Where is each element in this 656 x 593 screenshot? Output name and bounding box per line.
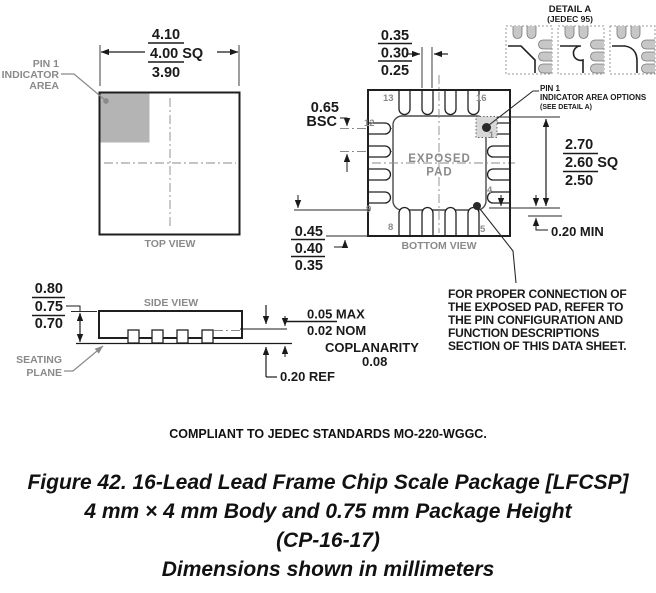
exposed-pad-label1: EXPOSED [408,153,471,165]
pad-corner-dot [473,202,481,210]
pin1-options-line1: PIN 1 [540,84,561,93]
standoff-annotations: 0.05 MAX 0.02 NOM COPLANARITY 0.08 0.20 … [240,305,419,384]
side-lead [128,330,139,343]
height-dim-min: 0.70 [35,316,63,332]
mechanical-drawing: TOP VIEW 4.10 4.00 SQ 3.90 PIN 1 INDICAT… [0,0,656,422]
pin-number-1: 1 [489,130,495,141]
seating-plane-line1: SEATING [16,354,62,366]
top-view-label: TOP VIEW [145,238,196,250]
lead-width-max: 0.35 [381,28,409,44]
seating-plane-line2: PLANE [26,367,62,379]
note-line5: SECTION OF THIS DATA SHEET. [448,339,626,353]
lead-width-nom: 0.30 [381,46,409,62]
figure-caption: Figure 42. 16-Lead Lead Frame Chip Scale… [0,468,656,584]
side-lead [177,330,188,343]
top-view: TOP VIEW 4.10 4.00 SQ 3.90 PIN 1 INDICAT… [2,27,240,250]
note-line2: THE EXPOSED PAD, REFER TO [448,300,623,314]
pin1-options-callout: PIN 1 INDICATOR AREA OPTIONS (SEE DETAIL… [489,84,647,125]
pin-number-12: 12 [364,118,375,129]
caption-line-3: (CP-16-17) [0,526,656,555]
body-dim-max: 4.10 [152,27,180,43]
pad-dim-nom: 2.60 SQ [565,155,618,171]
seating-plane-callout: SEATING PLANE [16,346,103,379]
caption-line-2: 4 mm × 4 mm Body and 0.75 mm Package Hei… [0,497,656,526]
coplanarity-value: 0.08 [362,354,387,369]
pin-number-9: 9 [366,204,371,215]
bottom-view: 1 EXPOSED PAD BOTTOM VIEW 13 16 12 9 8 5… [291,28,647,353]
detail-a-option-1 [506,26,552,74]
pad-to-lead-clearance: 0.20 MIN [551,224,604,239]
caption-line-4: Dimensions shown in millimeters [0,555,656,584]
lead-width-dimension: 0.35 0.30 0.25 [378,28,448,88]
pin-number-8: 8 [388,222,393,233]
detail-a-subtitle: (JEDEC 95) [547,14,593,24]
detail-a: DETAIL A (JEDEC 95) [506,4,655,74]
pin-number-16: 16 [476,93,487,104]
bottom-view-label: BOTTOM VIEW [401,240,476,252]
pin1-options-line2: INDICATOR AREA OPTIONS [540,93,647,102]
height-dim-nom: 0.75 [35,299,63,315]
note-line1: FOR PROPER CONNECTION OF [448,287,627,301]
body-size-dimension: 4.10 4.00 SQ 3.90 [100,27,239,86]
pin-number-13: 13 [383,93,394,104]
lead-width-min: 0.25 [381,63,409,79]
exposed-pad-label2: PAD [426,167,452,179]
standoff-nom: 0.02 NOM [307,323,366,338]
pin-number-5: 5 [480,224,486,235]
pin1-area-line3: AREA [29,80,59,92]
lead-length-dimension: 0.45 0.40 0.35 [291,195,370,274]
lead-pitch-dimension: 0.65 BSC [306,100,347,172]
note-line4: FUNCTION DESCRIPTIONS [448,326,599,340]
package-height-dimension: 0.80 0.75 0.70 [32,281,97,342]
side-lead [152,330,163,343]
pin-number-4: 4 [487,185,493,196]
lead-length-max: 0.45 [295,224,323,240]
side-lead [202,330,213,343]
body-dim-min: 3.90 [152,65,180,81]
package-drawing-figure: TOP VIEW 4.10 4.00 SQ 3.90 PIN 1 INDICAT… [0,0,656,593]
pad-dim-min: 2.50 [565,173,593,189]
body-dim-nom: 4.00 SQ [150,46,203,62]
pin1-options-line3: (SEE DETAIL A) [540,104,592,111]
lead-length-min: 0.35 [295,258,323,274]
note-line3: THE PIN CONFIGURATION AND [448,313,624,327]
pad-dim-max: 2.70 [565,137,593,153]
jedec-compliance-note: COMPLIANT TO JEDEC STANDARDS MO-220-WGGC… [0,427,656,441]
pitch-qualifier: BSC [306,114,337,130]
height-dim-max: 0.80 [35,281,63,297]
lead-thickness: 0.20 REF [280,369,335,384]
caption-line-1: Figure 42. 16-Lead Lead Frame Chip Scale… [0,468,656,497]
side-view: SIDE VIEW 0.80 0.75 0.70 SEATING PLANE [16,281,419,384]
seating-plane-arrow [64,346,103,371]
detail-a-option-2 [558,26,604,74]
side-view-body [99,311,242,338]
detail-a-option-3 [610,26,655,74]
pin1-area-leader [61,74,105,100]
standoff-max: 0.05 MAX [307,307,365,322]
exposed-pad-note: FOR PROPER CONNECTION OF THE EXPOSED PAD… [448,287,627,353]
pin1-area-callout: PIN 1 INDICATOR AREA [2,58,109,104]
side-view-label: SIDE VIEW [144,297,198,309]
coplanarity-label: COPLANARITY [325,340,419,355]
lead-length-nom: 0.40 [295,241,323,257]
pin1-area-leader-dot [103,98,109,104]
